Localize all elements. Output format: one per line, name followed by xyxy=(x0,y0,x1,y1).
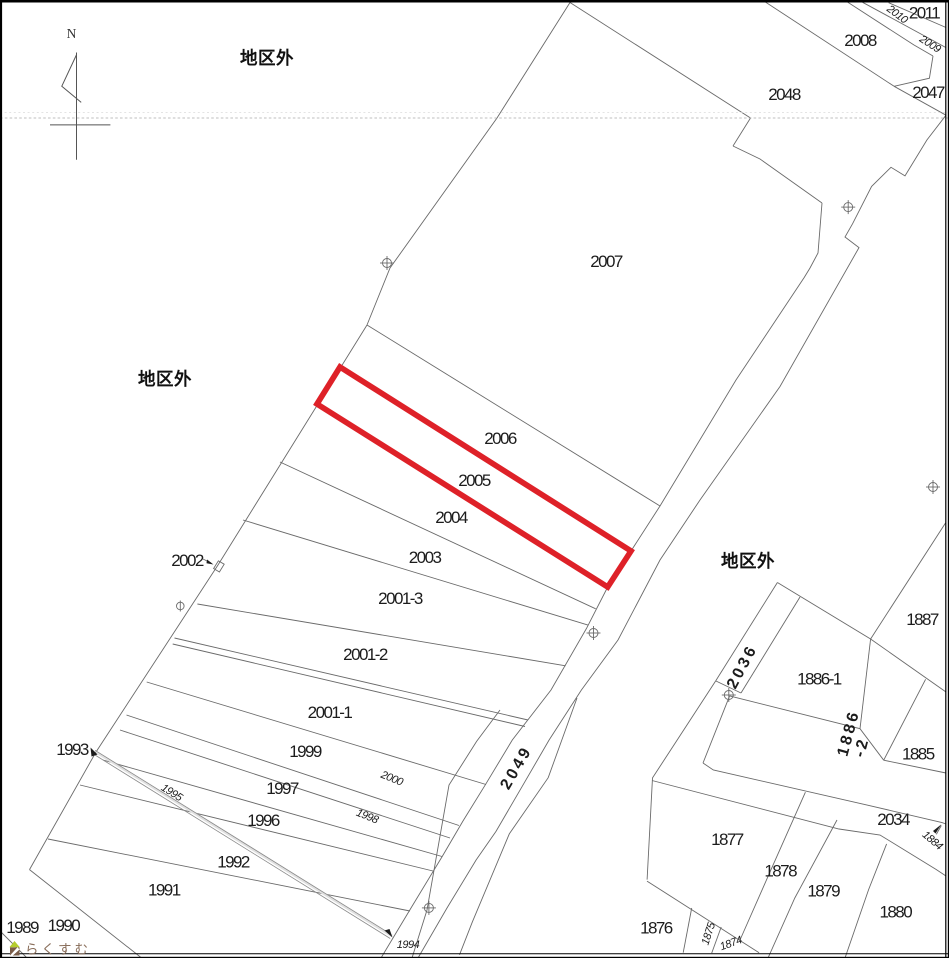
svg-text:地区外: 地区外 xyxy=(240,48,294,68)
svg-text:2009: 2009 xyxy=(916,33,943,56)
svg-text:2004: 2004 xyxy=(435,508,468,527)
svg-text:らくすむ: らくすむ xyxy=(25,942,91,957)
svg-text:1884: 1884 xyxy=(920,829,945,853)
svg-text:2002: 2002 xyxy=(171,551,204,570)
svg-text:2001-3: 2001-3 xyxy=(378,589,423,608)
svg-text:2006: 2006 xyxy=(484,429,517,448)
svg-text:N: N xyxy=(67,26,77,41)
svg-text:2001-1: 2001-1 xyxy=(308,703,353,722)
svg-text:1999: 1999 xyxy=(289,742,322,761)
svg-text:2007: 2007 xyxy=(590,252,623,271)
svg-text:1876: 1876 xyxy=(640,918,673,937)
svg-text:2049: 2049 xyxy=(497,743,536,793)
svg-text:1886-1: 1886-1 xyxy=(797,670,842,689)
svg-text:2011: 2011 xyxy=(909,4,940,23)
svg-text:地区外: 地区外 xyxy=(721,551,775,571)
svg-text:1994: 1994 xyxy=(397,939,420,951)
svg-text:1887: 1887 xyxy=(906,610,939,629)
svg-text:1996: 1996 xyxy=(247,811,280,830)
svg-text:1877: 1877 xyxy=(711,830,744,849)
svg-text:2000: 2000 xyxy=(378,769,406,789)
svg-text:1997: 1997 xyxy=(266,779,299,798)
svg-text:1880: 1880 xyxy=(879,903,912,922)
svg-text:1885: 1885 xyxy=(902,744,935,763)
svg-text:2001-2: 2001-2 xyxy=(343,645,388,664)
svg-text:1991: 1991 xyxy=(148,881,181,900)
svg-text:2034: 2034 xyxy=(877,810,910,829)
svg-text:地区外: 地区外 xyxy=(138,369,192,389)
svg-text:1989: 1989 xyxy=(6,918,39,937)
svg-text:2005: 2005 xyxy=(458,471,491,490)
svg-text:1993: 1993 xyxy=(56,740,89,759)
svg-text:1990: 1990 xyxy=(48,916,81,935)
svg-text:1998: 1998 xyxy=(354,807,381,827)
svg-text:1995: 1995 xyxy=(159,782,186,805)
svg-text:1874: 1874 xyxy=(718,934,744,953)
svg-text:1878: 1878 xyxy=(764,861,797,880)
svg-text:1992: 1992 xyxy=(217,853,250,872)
svg-text:2047: 2047 xyxy=(912,83,945,102)
svg-text:2048: 2048 xyxy=(768,85,801,104)
svg-text:1879: 1879 xyxy=(807,882,840,901)
svg-text:2010: 2010 xyxy=(884,2,911,27)
svg-text:2036: 2036 xyxy=(724,642,761,692)
svg-text:2008: 2008 xyxy=(844,31,877,50)
svg-text:2003: 2003 xyxy=(409,548,442,567)
